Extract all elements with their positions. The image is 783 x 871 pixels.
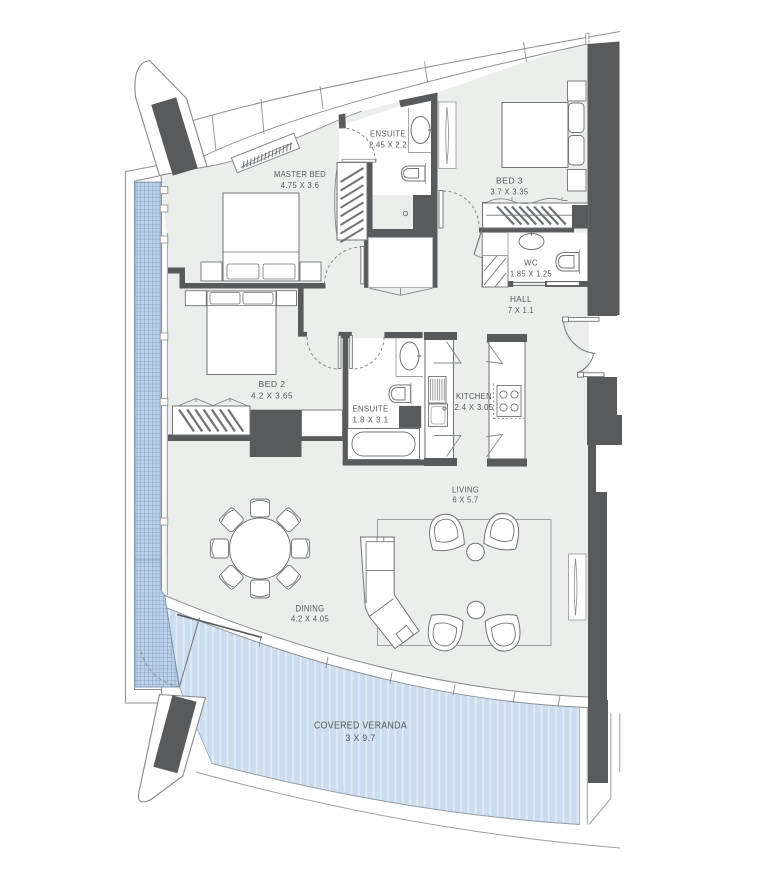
svg-text:4.75 X 3.6: 4.75 X 3.6 [281,181,320,190]
svg-text:MASTER BED: MASTER BED [274,169,326,179]
svg-text:3 X 9.7: 3 X 9.7 [346,733,376,743]
svg-text:6 X 5.7: 6 X 5.7 [453,496,479,505]
svg-text:HALL: HALL [510,294,532,304]
svg-text:COVERED VERANDA: COVERED VERANDA [314,721,407,732]
svg-text:KITCHEN: KITCHEN [456,391,492,401]
svg-text:4.2 X 3.65: 4.2 X 3.65 [251,392,293,401]
svg-text:2.4 X 3.05: 2.4 X 3.05 [455,403,494,412]
svg-text:BED 2: BED 2 [259,379,286,389]
svg-text:2.45 X 2.2: 2.45 X 2.2 [369,141,407,150]
svg-text:1.8 X 3.1: 1.8 X 3.1 [353,416,389,425]
svg-text:DINING: DINING [296,604,325,614]
svg-text:3.7 X 3.35: 3.7 X 3.35 [491,188,529,197]
svg-text:ENSUITE: ENSUITE [353,404,389,414]
svg-text:7 X 1.1: 7 X 1.1 [508,306,534,315]
svg-text:4.2 X 4.05: 4.2 X 4.05 [291,614,329,624]
svg-text:ENSUITE: ENSUITE [370,129,406,139]
svg-text:1.85 X 1.25: 1.85 X 1.25 [510,270,552,279]
svg-text:WC: WC [524,258,538,268]
svg-text:BED 3: BED 3 [496,176,523,186]
svg-text:LIVING: LIVING [452,485,479,495]
